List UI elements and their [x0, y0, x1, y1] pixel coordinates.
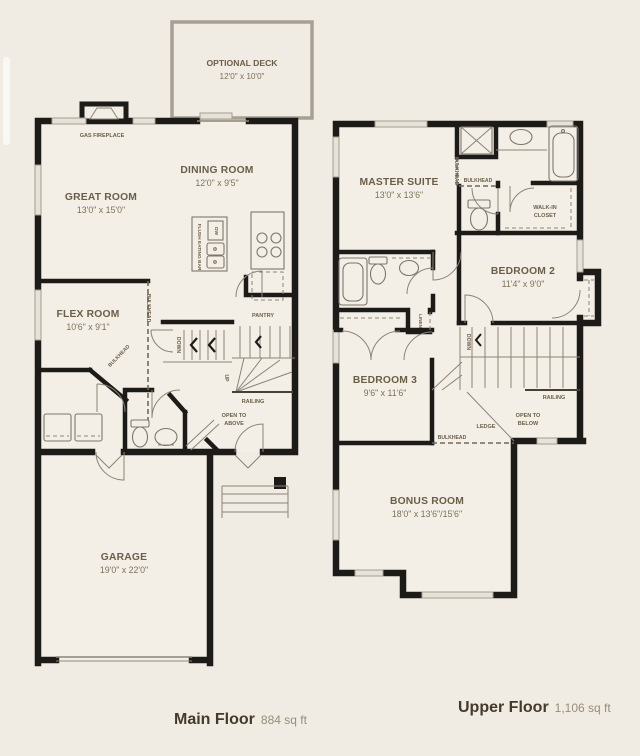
bedroom2-label: BEDROOM 2: [491, 266, 555, 277]
bedroom3-dims: 9'6" x 11'6": [364, 388, 407, 398]
upper-floor-area-text: 1,106 sq ft: [555, 701, 612, 715]
window: [52, 118, 86, 124]
flex-room-dims: 10'6" x 9'1": [66, 322, 109, 332]
window: [133, 118, 155, 124]
bedroom3-label: BEDROOM 3: [353, 375, 417, 386]
window: [333, 137, 339, 177]
bulkhead-label: BULKHEAD: [438, 435, 467, 441]
down-label: DOWN: [175, 337, 181, 353]
walk-in-closet-label: WALK-IN: [533, 205, 557, 211]
open-to-above-label2: ABOVE: [224, 421, 244, 427]
floorplan-page: OPTIONAL DECK 12'0" x 10'0": [0, 0, 640, 756]
porch-post: [274, 477, 286, 489]
open-to-below-label: OPEN TO: [516, 413, 541, 419]
bonus-room-label: BONUS ROOM: [390, 496, 464, 507]
bulkhead-label: BULKHEAD: [464, 178, 493, 184]
deck-label: OPTIONAL DECK: [207, 58, 279, 68]
fireplace: [82, 104, 126, 121]
garage-dims: 19'0" x 22'0": [100, 565, 148, 575]
window: [35, 290, 41, 340]
walk-in-closet-label2: CLOSET: [534, 213, 557, 219]
great-room-label: GREAT ROOM: [65, 192, 137, 203]
window: [422, 592, 493, 598]
window: [375, 121, 427, 127]
dw-label: DW: [213, 227, 219, 235]
window: [577, 240, 583, 272]
bedroom2-dims: 11'4" x 9'0": [502, 279, 545, 289]
down-label: DOWN: [465, 334, 471, 350]
main-floor-title: Main Floor: [174, 711, 255, 728]
window: [333, 490, 339, 540]
window: [355, 570, 383, 576]
floorplan-drawing: OPTIONAL DECK 12'0" x 10'0": [0, 0, 640, 756]
window: [333, 330, 339, 363]
upper-floor-caption: Upper Floor1,106 sq ft: [458, 699, 611, 716]
upper-floor-title: Upper Floor: [458, 699, 549, 716]
open-to-above-label: OPEN TO: [222, 413, 247, 419]
main-floor-area-text: 884 sq ft: [261, 713, 308, 727]
gas-fireplace-label: GAS FIREPLACE: [80, 133, 125, 139]
dining-room-label: DINING ROOM: [180, 165, 253, 176]
window: [35, 165, 41, 215]
ledge-label: LEDGE: [477, 424, 496, 430]
open-to-below-label2: BELOW: [518, 421, 539, 427]
up-label: UP: [223, 374, 229, 382]
garage-label: GARAGE: [101, 552, 147, 563]
window: [537, 438, 557, 444]
railing-label: RAILING: [242, 399, 265, 405]
linen-label: LINEN: [418, 314, 423, 329]
flex-room-label: FLEX ROOM: [56, 309, 119, 320]
bonus-room-dims: 18'0" x 13'6"/15'6": [392, 509, 462, 519]
railing-label: RAILING: [543, 395, 566, 401]
pantry-label: PANTRY: [252, 313, 274, 319]
deck-dims: 12'0" x 10'0": [220, 72, 265, 81]
great-room-dims: 13'0" x 15'0": [77, 205, 125, 215]
master-suite-label: MASTER SUITE: [359, 177, 438, 188]
bulkhead-label: BULKHEAD: [145, 294, 151, 323]
master-suite-dims: 13'0" x 13'6": [375, 190, 423, 200]
flush-eating-bar-label: FLUSH EATING BAR: [196, 224, 202, 271]
dining-room-dims: 12'0" x 9'5": [195, 178, 238, 188]
main-floor-caption: Main Floor884 sq ft: [174, 711, 308, 728]
bulkhead-label: BULKHEAD: [453, 157, 459, 186]
scan-artifact: [3, 57, 10, 145]
